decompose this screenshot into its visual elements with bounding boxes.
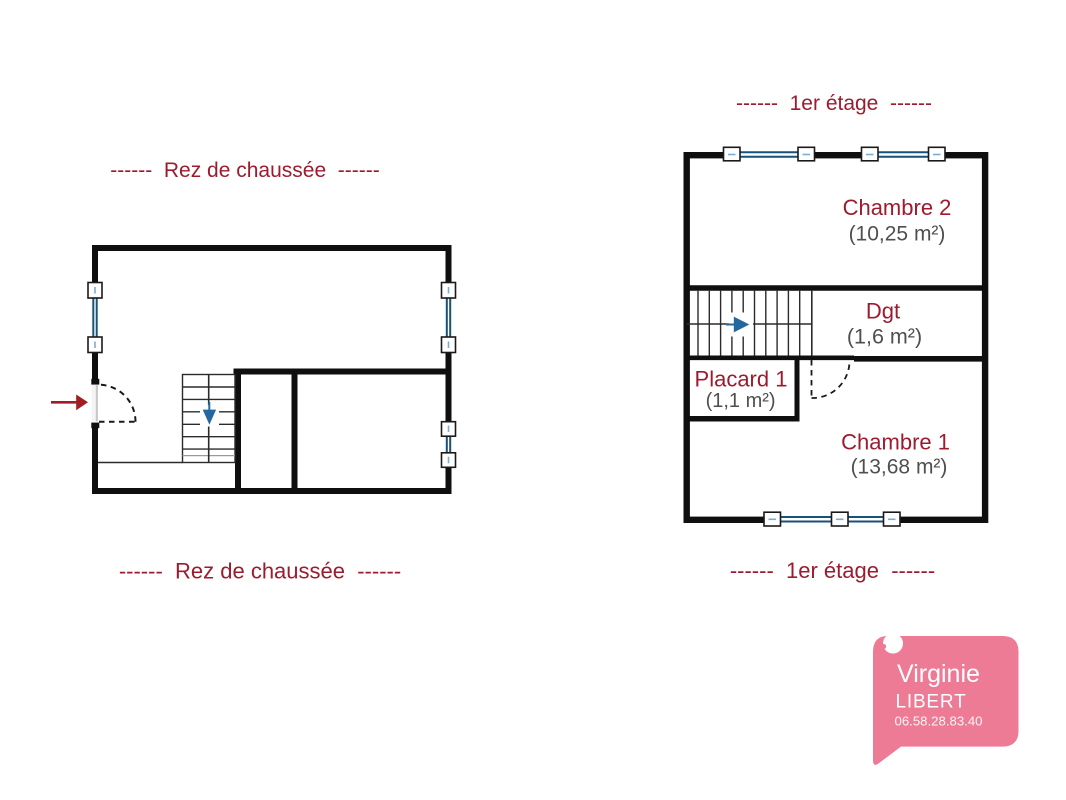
svg-text:LIBERT: LIBERT [896,692,967,713]
svg-text:(1,6 m²): (1,6 m²) [847,325,922,349]
svg-text:------ Rez de chaussée -----: ------ Rez de chaussée ------ [110,159,380,182]
svg-text:------ 1er étage ------: ------ 1er étage ------ [736,92,932,115]
svg-text:(1,1 m²): (1,1 m²) [706,390,776,412]
svg-text:Placard 1: Placard 1 [695,366,788,391]
svg-text:(10,25 m²): (10,25 m²) [849,223,946,246]
svg-text:------ 1er étage ------: ------ 1er étage ------ [730,558,935,583]
svg-text:Dgt: Dgt [866,299,900,324]
svg-text:------ Rez de chaussée -----: ------ Rez de chaussée ------ [119,559,401,584]
svg-text:06.58.28.83.40: 06.58.28.83.40 [895,714,983,729]
svg-text:Virginie: Virginie [897,660,980,688]
svg-text:(13,68 m²): (13,68 m²) [851,456,948,479]
svg-text:Chambre 1: Chambre 1 [841,430,950,455]
svg-text:Chambre 2: Chambre 2 [843,195,952,220]
